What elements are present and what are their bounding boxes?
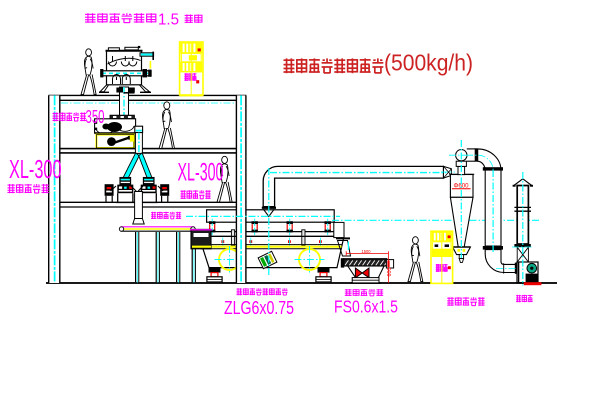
svg-text:1500: 1500 — [362, 249, 371, 255]
svg-text:600: 600 — [387, 268, 393, 277]
svg-text:1.5: 1.5 — [158, 12, 179, 29]
svg-text:350: 350 — [86, 106, 105, 127]
svg-text:FS0.6x1.5: FS0.6x1.5 — [334, 297, 398, 317]
svg-text:XL-300: XL-300 — [9, 154, 62, 184]
svg-text:ZLG6x0.75: ZLG6x0.75 — [224, 297, 294, 318]
svg-text:XL-300: XL-300 — [178, 159, 224, 187]
svg-text:(500kg/h): (500kg/h) — [384, 50, 473, 76]
